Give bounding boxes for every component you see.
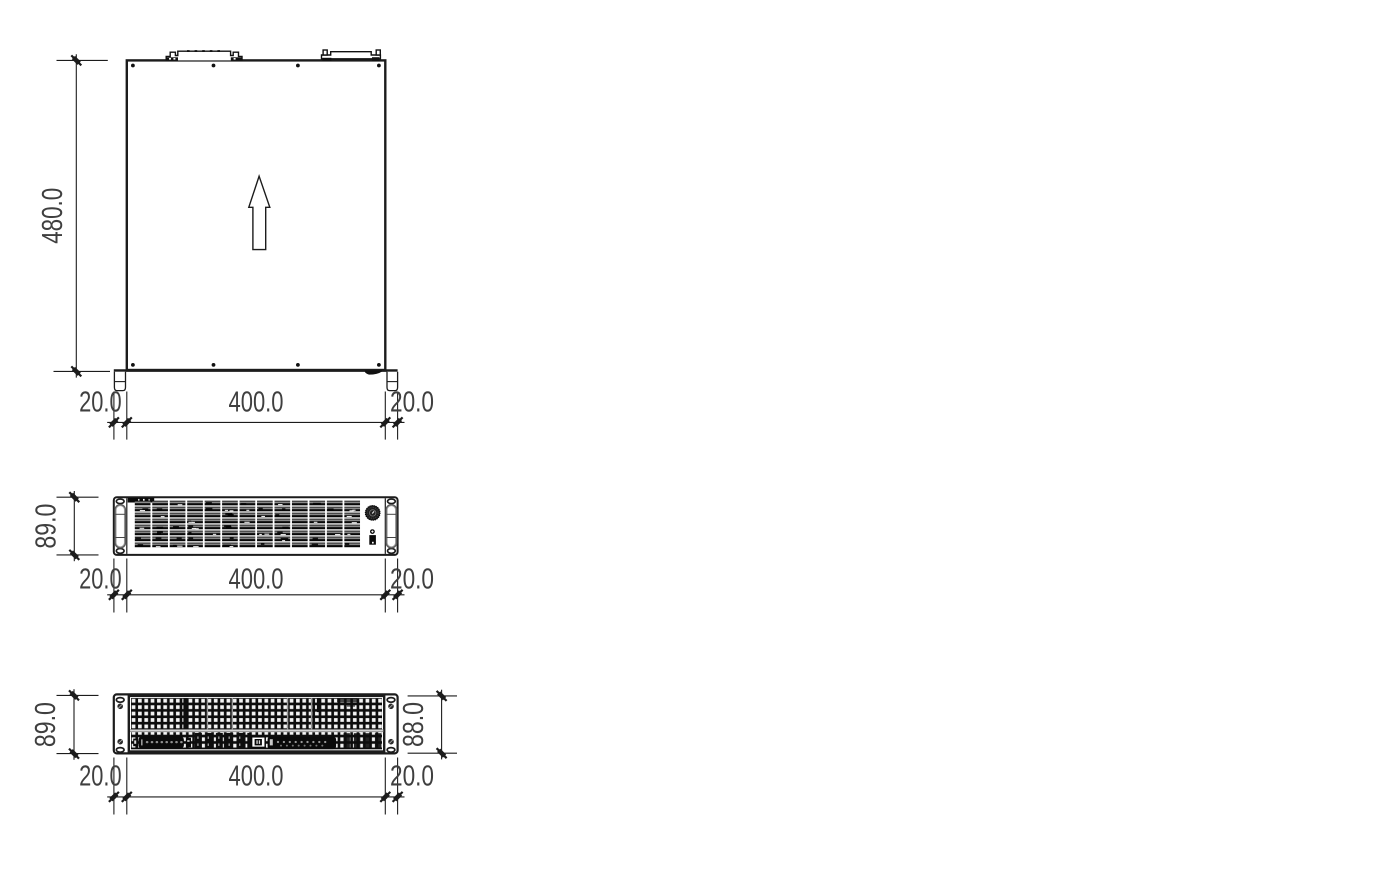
svg-text:400.0: 400.0 [229,386,284,418]
svg-text:400.0: 400.0 [229,563,284,595]
svg-text:480.0: 480.0 [37,188,69,244]
svg-text:20.0: 20.0 [79,386,122,418]
svg-text:20.0: 20.0 [79,563,122,595]
svg-text:20.0: 20.0 [390,760,434,792]
svg-text:89.0: 89.0 [30,504,62,549]
svg-text:400.0: 400.0 [229,760,284,792]
svg-text:88.0: 88.0 [398,702,430,747]
svg-text:20.0: 20.0 [390,386,434,418]
svg-text:20.0: 20.0 [79,760,122,792]
svg-text:89.0: 89.0 [30,702,62,747]
svg-text:20.0: 20.0 [390,563,434,595]
